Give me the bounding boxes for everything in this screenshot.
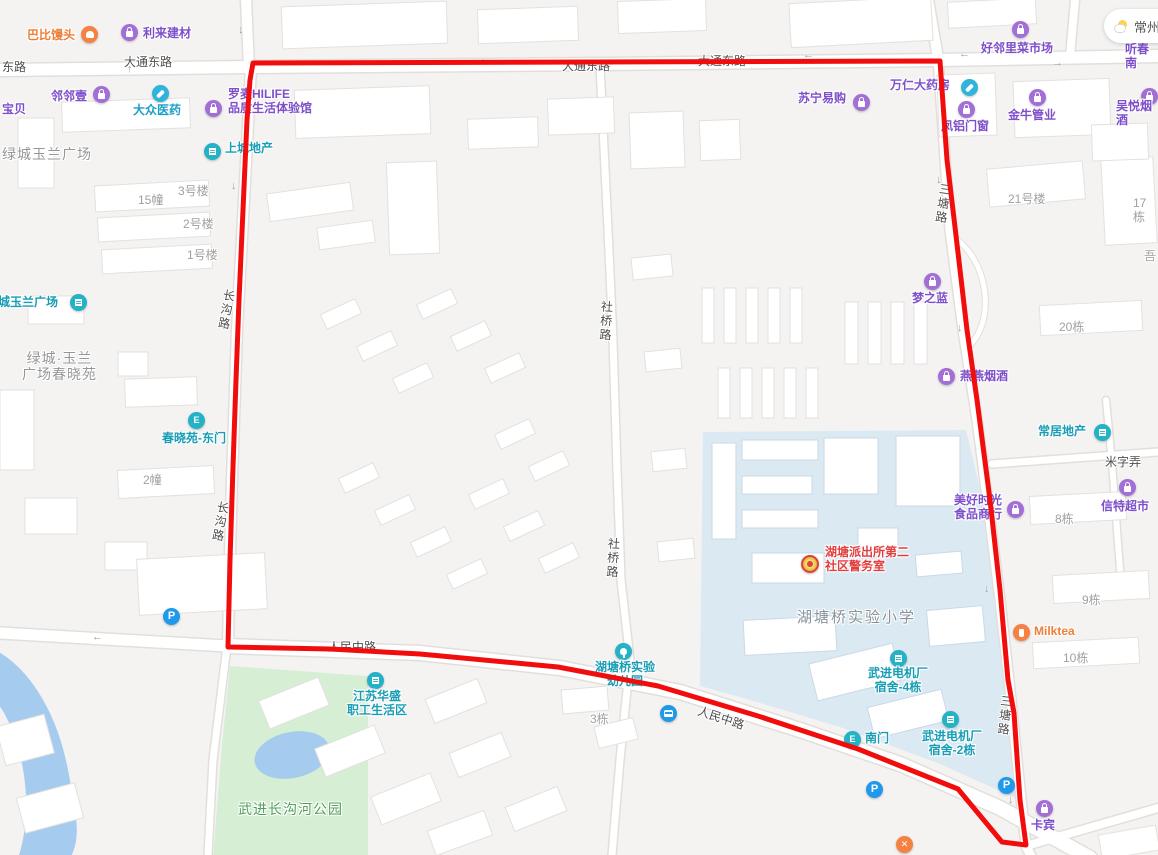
poi-icon[interactable] <box>93 86 110 103</box>
road-label: 大通东路 <box>698 55 746 69</box>
poi-icon[interactable] <box>70 294 87 311</box>
road-label: 人民中路 <box>696 705 746 733</box>
poi-label[interactable]: 春晓苑-东门 <box>162 432 226 446</box>
weather-city: 常州 <box>1134 17 1158 36</box>
poi-icon[interactable] <box>121 24 138 41</box>
poi-label[interactable]: 金牛管业 <box>1008 109 1056 123</box>
road-label: 社桥路 <box>604 537 620 580</box>
restaurant-icon[interactable]: ✕ <box>896 836 913 853</box>
poi-icon[interactable] <box>853 94 870 111</box>
road-direction-arrow-icon: ↓ <box>936 174 942 186</box>
map-canvas[interactable]: 东路大通东路大通东路大通东路长沟路长沟路社桥路社桥路三塘路三塘路人民中路人民中路… <box>0 0 1158 855</box>
poi-icon[interactable] <box>1013 624 1030 641</box>
poi-label[interactable]: 燕燕烟酒 <box>960 370 1008 384</box>
road-direction-arrow-icon: ← <box>92 631 103 643</box>
poi-icon[interactable] <box>942 711 959 728</box>
poi-icon[interactable] <box>958 101 975 118</box>
poi-icon[interactable] <box>367 672 384 689</box>
poi-icon[interactable] <box>1094 424 1111 441</box>
road-direction-arrow-icon: ↓ <box>957 322 963 334</box>
poi-icon[interactable] <box>961 79 978 96</box>
poi-icon[interactable] <box>801 555 819 573</box>
area-label: 武进长沟河公园 <box>238 801 343 817</box>
poi-label[interactable]: 信特超市 <box>1101 500 1149 514</box>
parking-icon[interactable]: P <box>998 777 1015 794</box>
poi-label[interactable]: 绿城玉兰广场 <box>0 296 58 310</box>
parking-icon[interactable]: P <box>866 781 883 798</box>
poi-label[interactable]: 湖塘桥实验 幼儿园 <box>590 661 660 689</box>
poi-icon[interactable] <box>81 26 98 43</box>
weather-widget[interactable]: 常州 <box>1104 9 1158 43</box>
poi-label[interactable]: Milktea <box>1034 625 1075 639</box>
building-number-label: 20栋 <box>1059 321 1084 335</box>
area-label: 绿城·玉兰 广场春晓苑 <box>22 350 97 382</box>
road-label: 大通东路 <box>562 60 610 74</box>
poi-label[interactable]: 好邻里菜市场 <box>981 42 1053 56</box>
poi-label[interactable]: 万仁大药房 <box>890 79 950 93</box>
area-label: 湖塘桥实验小学 <box>797 609 916 626</box>
poi-label[interactable]: 苏宁易购 <box>798 92 846 106</box>
building-number-label: 2号楼 <box>183 218 214 232</box>
poi-icon[interactable] <box>152 85 169 102</box>
building-number-label: 3号楼 <box>178 185 209 199</box>
road-direction-arrow-icon: ↓ <box>1008 794 1014 806</box>
road-direction-arrow-icon: ← <box>480 53 491 65</box>
poi-label[interactable]: 美好时光 食品商行 <box>950 494 1006 522</box>
building-number-label: 8栋 <box>1055 513 1074 527</box>
area-label: 绿城玉兰广场 <box>2 146 92 162</box>
building-number-label: 3栋 <box>590 713 609 727</box>
map-labels-layer: 东路大通东路大通东路大通东路长沟路长沟路社桥路社桥路三塘路三塘路人民中路人民中路… <box>0 0 1158 855</box>
poi-label[interactable]: 武进电机厂 宿舍-4栋 <box>860 667 936 695</box>
poi-icon[interactable] <box>1029 89 1046 106</box>
road-direction-arrow-icon: ↓ <box>231 180 237 192</box>
building-number-label: 2幢 <box>143 474 162 488</box>
poi-icon[interactable] <box>890 650 907 667</box>
poi-label[interactable]: 卡宾 <box>1031 819 1055 833</box>
building-number-label: 17栋 <box>1133 197 1158 225</box>
poi-label[interactable]: 邻邻壹 <box>51 90 87 104</box>
poi-icon[interactable] <box>615 643 632 660</box>
poi-label[interactable]: 上城地产 <box>225 142 273 156</box>
partly-sunny-icon <box>1114 20 1128 32</box>
poi-label[interactable]: 吴悦烟酒 <box>1116 100 1158 128</box>
parking-icon[interactable]: P <box>163 608 180 625</box>
poi-icon[interactable]: E <box>188 412 205 429</box>
road-direction-arrow-icon: ↑ <box>999 600 1005 612</box>
building-number-label: 1号楼 <box>187 249 218 263</box>
poi-icon[interactable] <box>938 368 955 385</box>
building-number-label: 10栋 <box>1063 652 1088 666</box>
road-label: 社桥路 <box>597 300 613 343</box>
poi-label[interactable]: 常居地产 <box>1038 425 1086 439</box>
poi-icon[interactable] <box>1119 479 1136 496</box>
building-number-label: 9栋 <box>1082 594 1101 608</box>
poi-label[interactable]: 听春南 <box>1125 43 1158 71</box>
poi-label[interactable]: 湖塘派出所第二 社区警务室 <box>825 546 909 574</box>
road-label: 人民中路 <box>328 641 376 655</box>
poi-label[interactable]: 宝贝 <box>2 103 26 117</box>
road-direction-arrow-icon: ↑ <box>127 63 133 75</box>
road-label: 长沟路 <box>209 500 230 544</box>
road-label: 长沟路 <box>215 288 236 332</box>
road-direction-arrow-icon: ↓ <box>984 583 990 595</box>
road-direction-arrow-icon: ← <box>959 48 970 60</box>
poi-icon[interactable] <box>1012 21 1029 38</box>
poi-label[interactable]: 罗麦HILIFE 品质生活体验馆 <box>228 88 312 116</box>
poi-label[interactable]: 巴比馒头 <box>27 29 75 43</box>
building-number-label: 21号楼 <box>1008 193 1045 207</box>
poi-label[interactable]: 大众医药 <box>133 104 181 118</box>
poi-label[interactable]: 南门 <box>865 732 889 746</box>
poi-icon[interactable] <box>1036 800 1053 817</box>
poi-icon[interactable] <box>204 143 221 160</box>
road-direction-arrow-icon: ← <box>803 49 814 61</box>
road-direction-arrow-icon: ↓ <box>238 24 244 36</box>
road-label: 三塘路 <box>995 694 1013 737</box>
road-label: 东路 <box>2 61 26 75</box>
poi-label[interactable]: 武进电机厂 宿舍-2栋 <box>914 730 990 758</box>
road-label: 三塘路 <box>932 182 952 226</box>
building-number-label: 吾 <box>1144 250 1156 264</box>
poi-icon[interactable] <box>1007 501 1024 518</box>
poi-label[interactable]: 凤铝门窗 <box>941 120 989 134</box>
poi-label[interactable]: 江苏华盛 职工生活区 <box>342 690 412 718</box>
bus-stop-icon[interactable] <box>660 705 677 722</box>
building-number-label: 15幢 <box>138 194 163 208</box>
road-direction-arrow-icon: ← <box>271 639 282 651</box>
poi-icon[interactable] <box>205 100 222 117</box>
poi-label[interactable]: 利来建材 <box>143 27 191 41</box>
poi-icon[interactable]: E <box>844 731 861 748</box>
road-label: 米字弄 <box>1105 456 1141 470</box>
road-direction-arrow-icon: → <box>1052 57 1063 69</box>
poi-icon[interactable] <box>924 273 941 290</box>
poi-label[interactable]: 梦之蓝 <box>912 292 948 306</box>
